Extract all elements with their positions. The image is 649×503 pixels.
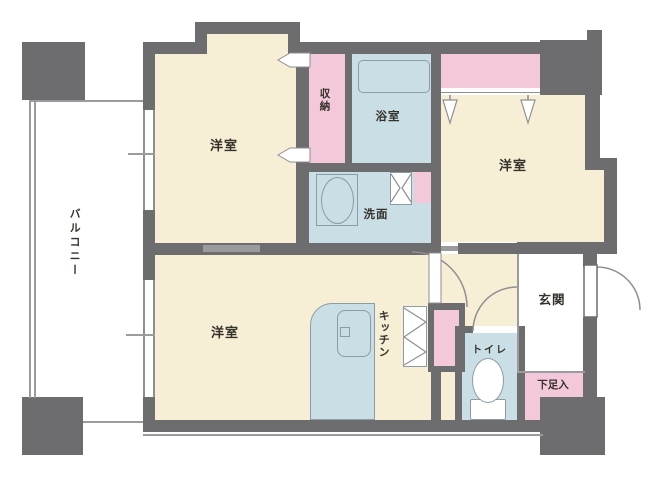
balcony-railing: [83, 421, 143, 423]
washroom-closet: [414, 172, 431, 203]
bedroom-right-closet: [441, 54, 540, 88]
window-tick: [126, 334, 155, 336]
pillar-block: [22, 397, 83, 455]
wall: [143, 243, 441, 255]
balcony: [31, 102, 143, 421]
pillar-block: [540, 397, 605, 455]
bedroom-bottom: [155, 255, 431, 420]
wall: [431, 54, 441, 255]
wall: [604, 158, 617, 254]
storage-label: 収納: [318, 88, 330, 113]
wall: [143, 420, 597, 432]
sliding-partition: [203, 245, 260, 252]
sink-bowl-icon: [321, 177, 354, 224]
bedroom-right-label: 洋室: [489, 159, 537, 173]
window: [143, 110, 155, 210]
wall: [195, 22, 300, 34]
wall: [455, 326, 473, 333]
wall: [143, 42, 200, 54]
balcony-label: バルコニー: [68, 208, 80, 278]
entrance-hall: [519, 254, 583, 373]
wall: [345, 54, 352, 163]
bedroom-top-bay: [207, 34, 289, 54]
balcony-railing: [34, 100, 36, 398]
exterior-line: [143, 434, 543, 436]
kitchen-label: キッチン: [377, 310, 389, 358]
wall: [455, 326, 462, 423]
sliding-partition: [441, 246, 458, 251]
wall: [517, 242, 617, 254]
wall: [143, 54, 155, 110]
bedroom-right-extension: [585, 170, 604, 242]
bath-folding-door: [390, 172, 412, 205]
pillar-block: [22, 42, 85, 100]
bedroom-top-label: 洋室: [200, 139, 248, 153]
wall: [458, 243, 517, 254]
balcony-railing: [29, 100, 143, 102]
wall: [296, 54, 309, 255]
faucet-icon: [340, 327, 350, 337]
bathroom-label: 浴室: [366, 111, 410, 124]
wall: [431, 372, 441, 420]
bedroom-bottom-label: 洋室: [201, 326, 249, 340]
shoe-cabinet-label: 下足入: [531, 380, 575, 392]
pillar-block: [587, 30, 602, 42]
closet-rail: [441, 92, 540, 93]
floor-plan: バルコニー 洋室 収納 浴室 洋室 洗面 洋室 キッチン トイレ 玄関 下足入: [0, 0, 649, 503]
shoe-cabinet-line: [519, 371, 585, 373]
pillar-block: [540, 40, 602, 95]
bathtub-icon: [358, 60, 430, 93]
closet-folding-door: [403, 306, 427, 367]
balcony-railing: [29, 100, 31, 398]
entrance-door-arc: [597, 267, 640, 310]
entrance-door-leaf: [584, 265, 597, 317]
toilet-bowl-icon: [472, 358, 504, 403]
window-tick: [128, 153, 155, 155]
wall: [296, 163, 441, 172]
wall: [288, 42, 540, 54]
window: [143, 280, 155, 397]
wall: [583, 254, 597, 267]
toilet-label: トイレ: [462, 345, 518, 356]
wall: [195, 22, 207, 54]
washroom-label: 洗面: [354, 209, 398, 222]
entrance-label: 玄関: [532, 294, 572, 308]
